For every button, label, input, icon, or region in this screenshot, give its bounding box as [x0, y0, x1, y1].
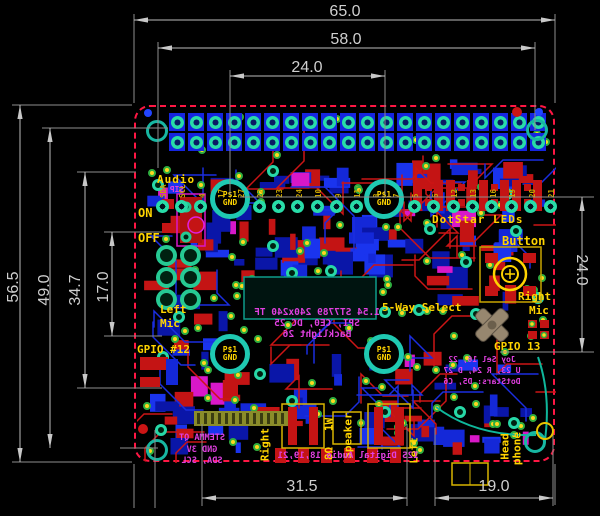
- corner-hole: [146, 120, 168, 142]
- dim-width-holes: 58.0: [316, 31, 376, 49]
- breakout-pin-label: 16: [489, 189, 498, 198]
- dim-height-mic: 17.0: [95, 257, 113, 317]
- header-pad: [228, 136, 241, 149]
- dim-height-total: 56.5: [5, 257, 23, 317]
- breakout-pin-label: 9: [334, 193, 343, 198]
- header-pad: [380, 116, 393, 129]
- corner-hole: [526, 119, 548, 141]
- silk-display-2: SPI, CE0, DC 25: [232, 318, 402, 329]
- header-pad: [342, 136, 355, 149]
- header-pad: [456, 116, 469, 129]
- mounting-hole: P$1GND: [210, 179, 250, 219]
- header-pad: [171, 116, 184, 129]
- breakout-pin-label: 17: [217, 189, 226, 198]
- silk-joystick-1: Joy Sel 16, 22: [427, 355, 537, 364]
- breakout-pad: [156, 200, 169, 213]
- header-pad: [513, 116, 526, 129]
- dim-height-mid: 34.7: [67, 260, 85, 320]
- pcb-board: P$1GND P$1GND P$1GND P$1GND Audio ON OFF…: [134, 105, 555, 462]
- header-pad: [190, 136, 203, 149]
- header-pad: [494, 116, 507, 129]
- breakout-pin-label: 12: [450, 189, 459, 198]
- header-pad: [209, 116, 222, 129]
- dim-bottom-right: 19.0: [464, 478, 524, 496]
- header-pad: [456, 136, 469, 149]
- mounting-hole: P$1GND: [364, 334, 404, 374]
- dim-height-right: 24.0: [572, 240, 590, 300]
- header-pad: [361, 136, 374, 149]
- breakout-pad: [311, 200, 324, 213]
- silk-right-mic-2: Mic: [529, 304, 549, 317]
- header-pad: [247, 136, 260, 149]
- silk-joystick-3: DotStars: D5, C6: [427, 377, 537, 386]
- silk-display-1: 1.54 ST7789 240x240 TF: [232, 307, 402, 318]
- silk-stemma-3: SDA, SCL: [162, 456, 242, 466]
- header-pad: [399, 116, 412, 129]
- mounting-hole: P$1GND: [210, 334, 250, 374]
- header-pad: [475, 136, 488, 149]
- silk-stemma-1: STEMMA QT: [162, 433, 242, 443]
- header-pad: [399, 136, 412, 149]
- header-pad: [209, 136, 222, 149]
- breakout-pad: [505, 200, 518, 213]
- silk-joystick-2: U 23, R 24, D 27: [427, 366, 537, 375]
- dim-width-top: 24.0: [277, 59, 337, 77]
- header-pad: [285, 136, 298, 149]
- breakout-pad: [330, 200, 343, 213]
- silk-off: OFF: [138, 231, 160, 245]
- silk-gpio13: GPIO 13: [494, 340, 540, 353]
- breakout-pin-label: SCL: [178, 184, 187, 198]
- header-pad: [380, 136, 393, 149]
- silk-left-mic-1: Left: [160, 303, 187, 316]
- header-pad: [437, 136, 450, 149]
- header-pad: [342, 116, 355, 129]
- breakout-pin-label: 22: [256, 189, 265, 198]
- breakout-pad: [350, 200, 363, 213]
- breakout-pin-label: 8: [372, 193, 381, 198]
- header-pad: [361, 116, 374, 129]
- header-pad: [437, 116, 450, 129]
- breakout-pad: [447, 200, 460, 213]
- breakout-pin-label: 6: [431, 193, 440, 198]
- silk-right-mic-1: Right: [518, 290, 551, 303]
- silk-headphone-2: phone: [511, 429, 524, 469]
- silk-stemma-2: GND 3V: [162, 445, 242, 455]
- silk-i2s: I2S Digital Audio 18,19,21: [243, 451, 453, 461]
- breakout-pin-label: SDA: [159, 184, 168, 198]
- header-pad: [304, 116, 317, 129]
- header-pad: [171, 136, 184, 149]
- corner-hole: [524, 431, 546, 453]
- header-pad: [418, 136, 431, 149]
- breakout-pin-label: 11: [353, 189, 362, 198]
- breakout-pin-label: 19: [508, 189, 517, 198]
- header-pad: [323, 116, 336, 129]
- breakout-pad: [544, 200, 557, 213]
- left-mic-pad: [156, 267, 177, 288]
- silk-display-3: Backlight 26: [232, 329, 402, 340]
- silk-on: ON: [138, 206, 152, 220]
- left-mic-pad: [180, 267, 201, 288]
- silk-dotstar: DotStar LEDs: [432, 213, 523, 226]
- dim-height-holes: 49.0: [36, 260, 54, 320]
- header-pad: [247, 116, 260, 129]
- header-pad: [418, 116, 431, 129]
- header-pad: [494, 136, 507, 149]
- breakout-pad: [175, 200, 188, 213]
- header-pad: [266, 136, 279, 149]
- breakout-pad: [253, 200, 266, 213]
- breakout-pad: [524, 200, 537, 213]
- dim-width-total: 65.0: [315, 3, 375, 21]
- breakout-pad: [272, 200, 285, 213]
- breakout-pad: [408, 200, 421, 213]
- header-pad: [190, 116, 203, 129]
- dim-bottom-left: 31.5: [272, 478, 332, 496]
- breakout-pin-label: 4: [198, 193, 207, 198]
- silk-gpio12: GPIO #12: [137, 343, 190, 356]
- left-mic-pad: [180, 245, 201, 266]
- pcb-layout-view: 65.0 58.0 24.0 31.5 19.0 56.5 49.0 34.7 …: [0, 0, 600, 516]
- header-pad: [304, 136, 317, 149]
- header-pad: [266, 116, 279, 129]
- silk-button: Button: [502, 234, 545, 248]
- breakout-pin-label: 27: [237, 189, 246, 198]
- left-mic-pad: [156, 245, 177, 266]
- silk-speaker-1w: 1W: [323, 415, 336, 435]
- header-pad: [323, 136, 336, 149]
- mounting-hole: P$1GND: [364, 179, 404, 219]
- breakout-pin-label: 7: [392, 193, 401, 198]
- breakout-pin-label: 21: [547, 189, 556, 198]
- breakout-pin-label: 23: [275, 189, 284, 198]
- breakout-pin-label: 20: [528, 189, 537, 198]
- silk-left-mic-2: Mic: [160, 317, 180, 330]
- breakout-pin-label: 24: [295, 189, 304, 198]
- header-pad: [285, 116, 298, 129]
- breakout-pin-label: 5: [411, 193, 420, 198]
- breakout-pin-label: 10: [314, 189, 323, 198]
- breakout-pin-label: 13: [469, 189, 478, 198]
- header-pad: [228, 116, 241, 129]
- header-pad: [475, 116, 488, 129]
- header-pad: [513, 136, 526, 149]
- breakout-pad: [427, 200, 440, 213]
- breakout-pad: [466, 200, 479, 213]
